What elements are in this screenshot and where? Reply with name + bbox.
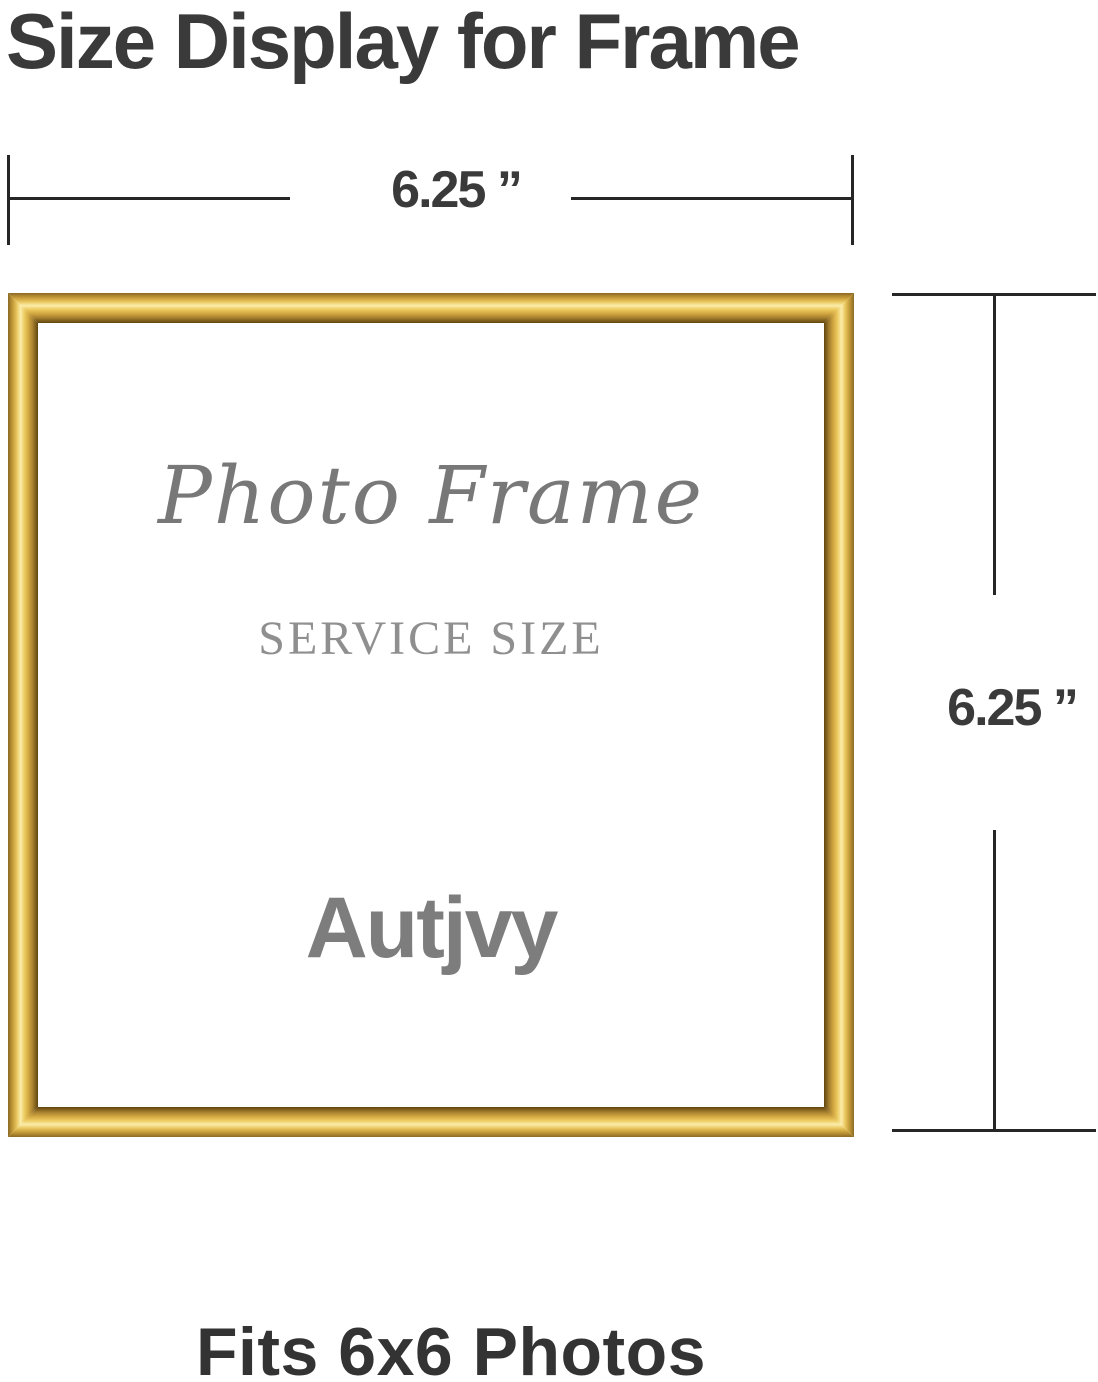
frame-edge-right [824, 293, 854, 1137]
height-dim-line-upper [993, 295, 996, 595]
width-dim-line-right [571, 197, 854, 200]
width-dim-left-tick [7, 155, 10, 245]
width-dim-label: 6.25 ” [315, 164, 597, 216]
height-dim-label: 6.25 ” [902, 682, 1098, 734]
frame-edge-top [8, 293, 854, 323]
photo-frame: Photo Frame SERVICE SIZE Autjvy [8, 293, 854, 1137]
width-dim-line-left [7, 197, 290, 200]
height-dim-line-lower [993, 830, 996, 1132]
page-title: Size Display for Frame [6, 2, 799, 80]
height-dim-bottom-tick [892, 1129, 1096, 1132]
frame-brand-text: Autjvy [38, 885, 824, 971]
frame-engraved-text: SERVICE SIZE [38, 615, 824, 663]
frame-edge-left [8, 293, 38, 1137]
width-dim-right-tick [851, 155, 854, 245]
frame-edge-bottom [8, 1107, 854, 1137]
frame-script-text: Photo Frame [38, 456, 824, 536]
size-display-figure: Size Display for Frame 6.25 ” Photo Fram… [0, 0, 1098, 1382]
frame-interior: Photo Frame SERVICE SIZE Autjvy [38, 323, 824, 1107]
footer-caption: Fits 6x6 Photos [0, 1318, 902, 1382]
